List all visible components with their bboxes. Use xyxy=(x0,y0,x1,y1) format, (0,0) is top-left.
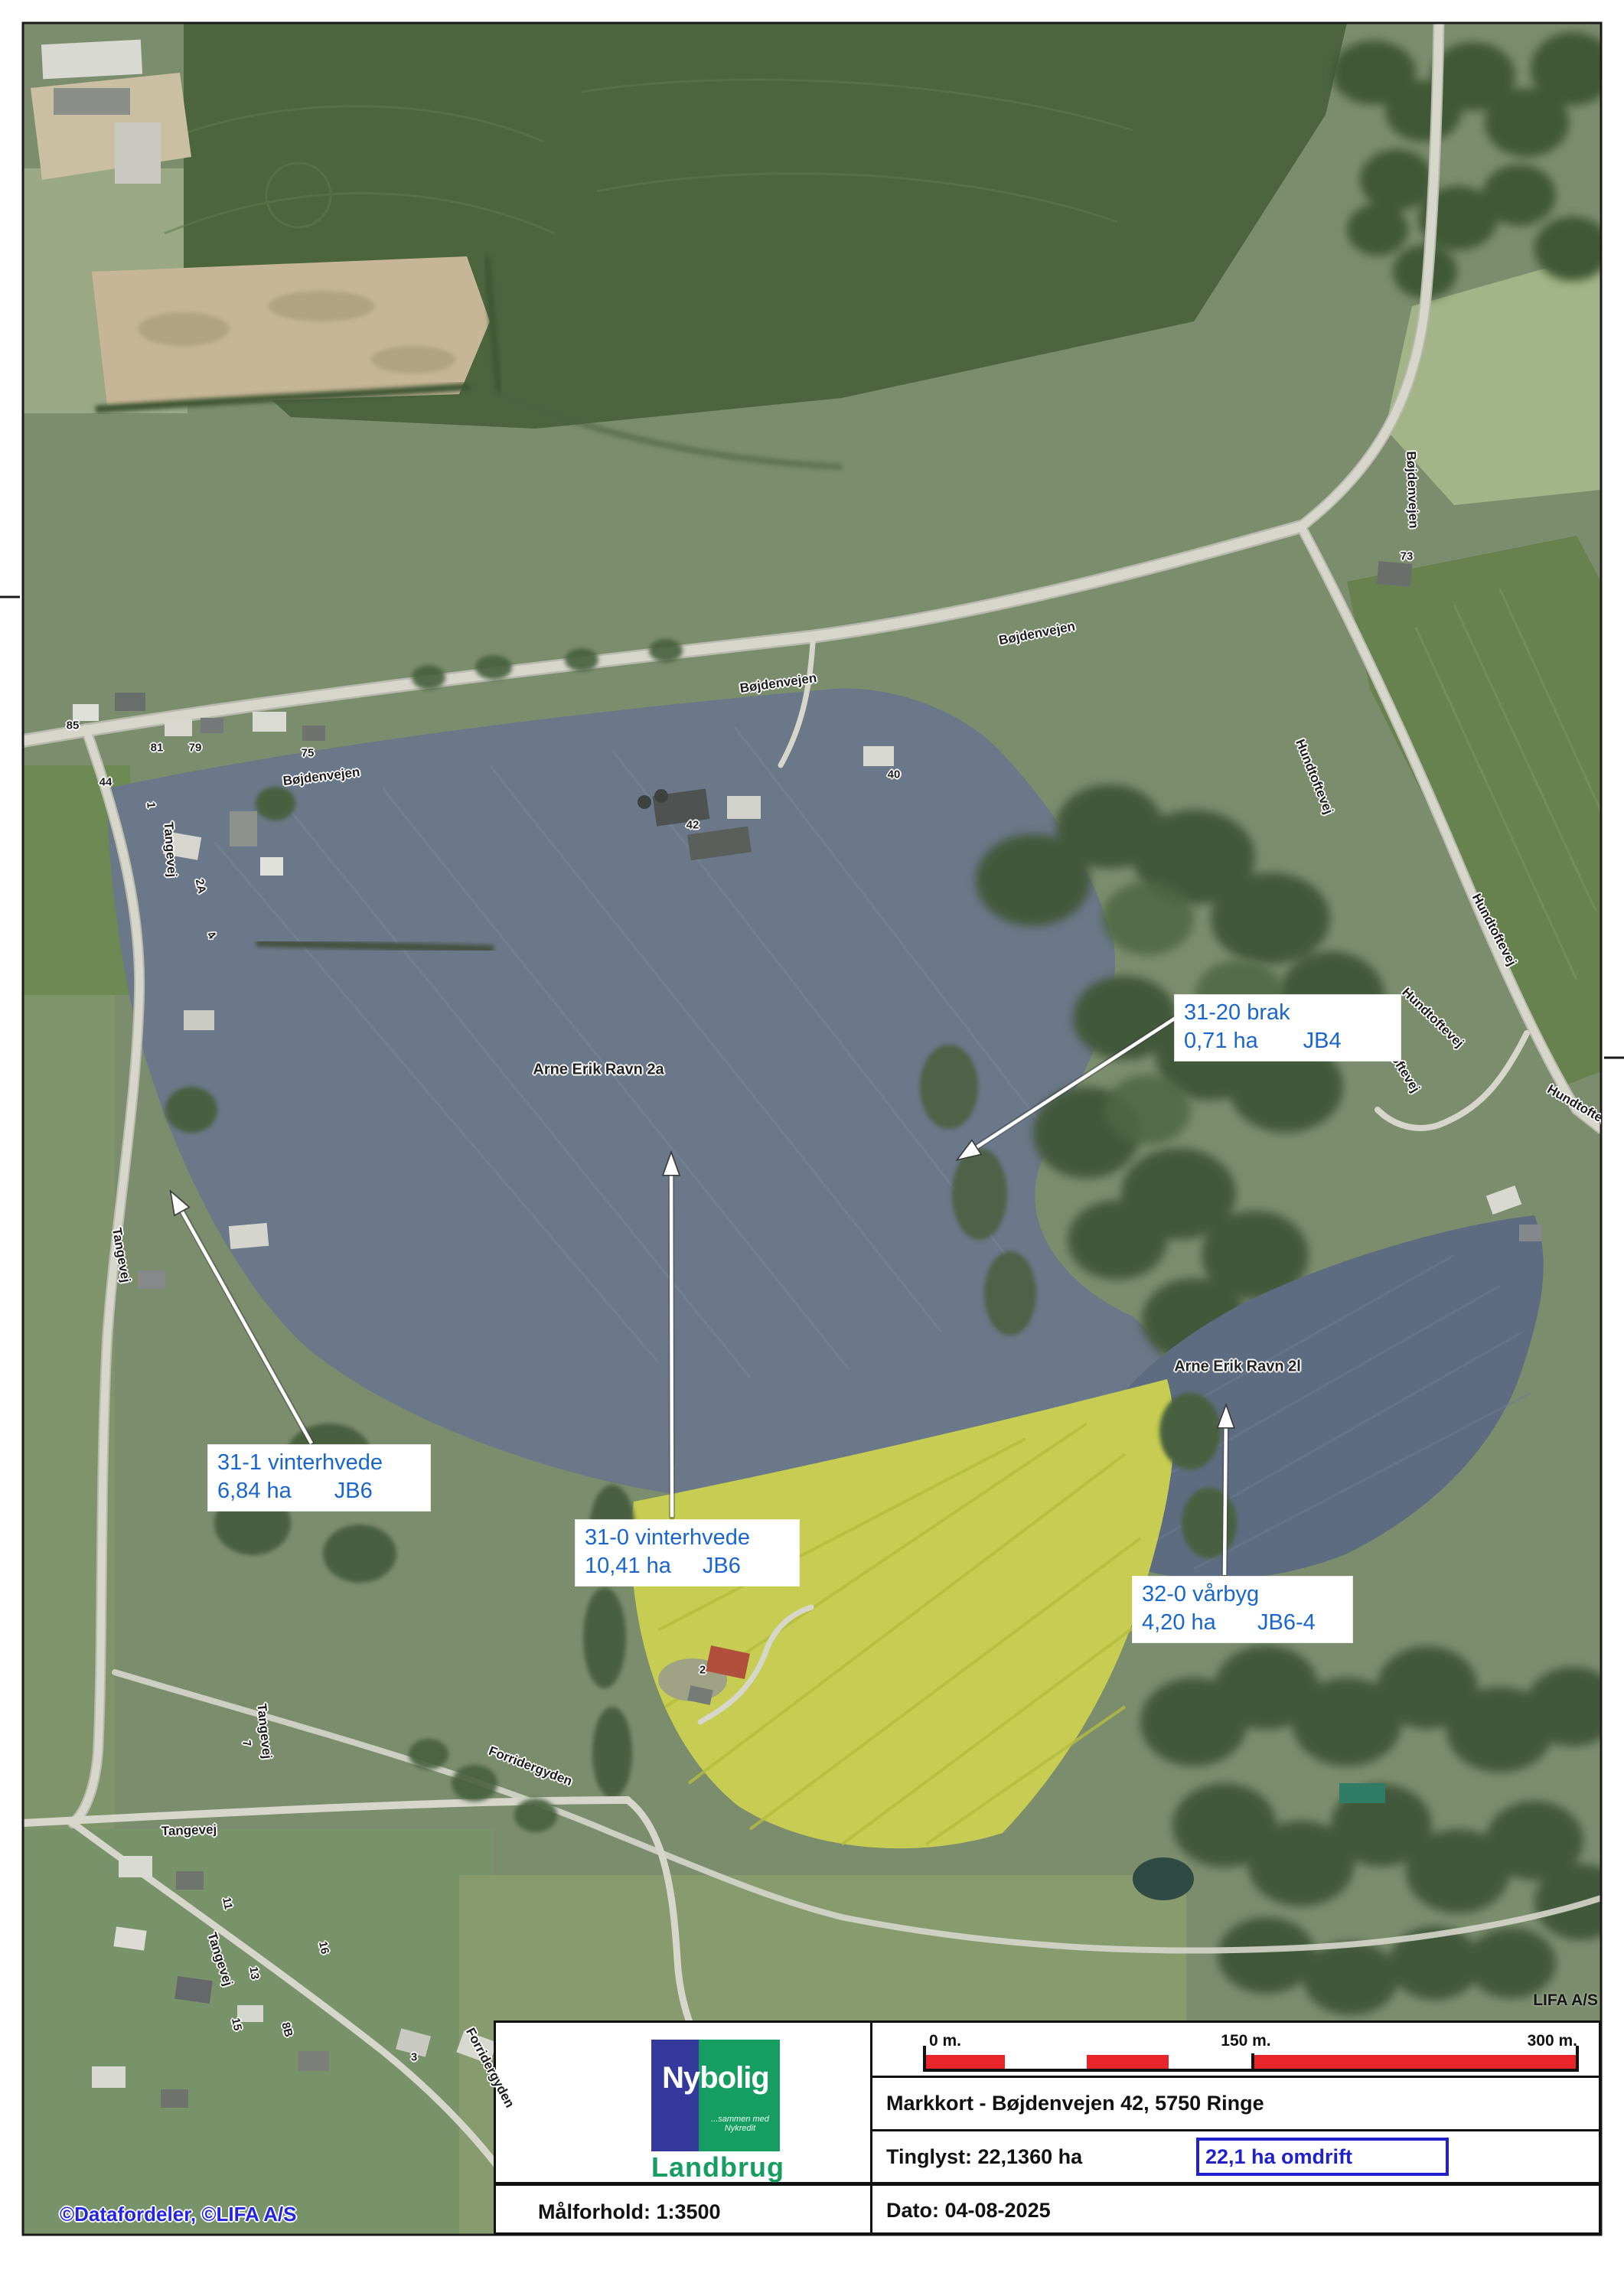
legend-line xyxy=(872,2076,1599,2078)
house-number: 40 xyxy=(888,768,901,781)
annotation-soil-type: JB6 xyxy=(334,1477,373,1505)
field-annotation-box: 31-20 brak0,71 haJB4 xyxy=(1175,995,1401,1061)
annotation-soil-type: JB6 xyxy=(703,1552,741,1580)
lifa-watermark: LIFA A/S xyxy=(1498,1991,1598,2010)
annotation-area-line: 0,71 haJB4 xyxy=(1184,1027,1393,1055)
road-label: Bøjdenvejen xyxy=(282,765,361,789)
house-number: 7 xyxy=(240,1739,253,1747)
road-label: Tangevej xyxy=(160,821,179,878)
house-number: 2A xyxy=(193,878,209,895)
road-label: Tangevej xyxy=(204,1930,235,1988)
road-label: Hundtoftevej xyxy=(1544,1081,1601,1134)
house-number: 73 xyxy=(1401,550,1414,563)
legend-box: Nybolig ...sammen med Nykredit Landbrug … xyxy=(494,2020,1601,2235)
omdrift-highlight-box: 22,1 ha omdrift xyxy=(1196,2138,1449,2176)
house-number: 44 xyxy=(99,776,113,789)
road-label: Tangevej xyxy=(253,1703,274,1760)
annotation-area-line: 4,20 haJB6-4 xyxy=(1142,1609,1345,1637)
scale-tick xyxy=(923,2046,926,2072)
annotation-soil-type: JB6-4 xyxy=(1257,1609,1316,1637)
annotation-crop-line: 31-0 vinterhvede xyxy=(585,1524,791,1552)
logo-green-square xyxy=(699,2040,780,2151)
road-label: Bøjdenvejen xyxy=(1403,451,1421,529)
house-number: 15 xyxy=(229,2017,244,2032)
logo-tagline: ...sammen med Nykredit xyxy=(700,2115,780,2133)
road-label: Tangevej xyxy=(161,1822,217,1840)
scale-segment xyxy=(1087,2055,1169,2069)
annotation-area: 0,71 ha xyxy=(1184,1029,1258,1053)
house-number: 85 xyxy=(67,719,80,732)
legend-line xyxy=(872,2129,1599,2131)
annotation-crop-line: 32-0 vårbyg xyxy=(1142,1580,1345,1609)
page: Nybolig ...sammen med Nykredit Landbrug … xyxy=(0,0,1624,2296)
road-label: Bøjdenvejen xyxy=(739,670,818,696)
road-label: Hundtoftevej xyxy=(1469,891,1519,968)
scale-segment xyxy=(923,2055,1005,2069)
house-number: 42 xyxy=(686,819,699,832)
copyright-text: ©Datafordeler, ©LIFA A/S xyxy=(60,2203,296,2226)
annotation-crop-line: 31-1 vinterhvede xyxy=(217,1449,422,1477)
logo-blue-square xyxy=(651,2040,699,2151)
house-number: 81 xyxy=(151,742,164,755)
road-label: Hundtoftevej xyxy=(1292,737,1335,817)
house-number: 3 xyxy=(411,2051,417,2064)
logo-brand-text: Nybolig xyxy=(651,2061,780,2095)
map-label-layer: Nybolig ...sammen med Nykredit Landbrug … xyxy=(23,23,1601,2235)
scale-segment xyxy=(1251,2055,1580,2069)
field-owner-label: Arne Erik Ravn 2l xyxy=(1174,1358,1301,1376)
road-label: Bøjdenvejen xyxy=(997,619,1076,649)
field-annotation-box: 31-1 vinterhvede6,84 haJB6 xyxy=(208,1445,430,1511)
house-number: 13 xyxy=(246,1966,261,1981)
house-number: 16 xyxy=(316,1940,331,1955)
scale-bar: 0 m. 150 m. 300 m. xyxy=(923,2032,1579,2072)
annotation-area-line: 10,41 haJB6 xyxy=(585,1552,791,1580)
house-number: 79 xyxy=(189,742,202,755)
house-number: 2 xyxy=(699,1664,706,1677)
house-number: 75 xyxy=(302,747,315,760)
house-number: 1 xyxy=(144,801,158,809)
annotation-area-line: 6,84 haJB6 xyxy=(217,1477,422,1505)
scale-label-0: 0 m. xyxy=(929,2032,961,2050)
field-annotation-box: 32-0 vårbyg4,20 haJB6-4 xyxy=(1133,1577,1352,1642)
road-label: Hundtoftevej xyxy=(1399,985,1467,1052)
scale-label-150: 150 m. xyxy=(1221,2032,1270,2050)
field-annotation-box: 31-0 vinterhvede10,41 haJB6 xyxy=(576,1520,799,1586)
house-number: 11 xyxy=(220,1896,235,1910)
scale-label-300: 300 m. xyxy=(1528,2032,1577,2050)
scale-ratio-text: Målforhold: 1:3500 xyxy=(538,2200,721,2224)
annotation-crop-line: 31-20 brak xyxy=(1184,999,1393,1027)
legend-divider xyxy=(870,2023,872,2232)
scale-tick xyxy=(1251,2053,1254,2072)
tinglyst-area: Tinglyst: 22,1360 ha xyxy=(886,2145,1082,2169)
annotation-soil-type: JB4 xyxy=(1303,1027,1342,1055)
road-label: Forridergyden xyxy=(487,1743,575,1789)
map-title: Markkort - Bøjdenvejen 42, 5750 Ringe xyxy=(886,2092,1264,2115)
date-text: Dato: 04-08-2025 xyxy=(886,2199,1051,2223)
field-owner-label: Arne Erik Ravn 2a xyxy=(533,1062,664,1079)
nybolig-landbrug-logo: Nybolig ...sammen med Nykredit Landbrug xyxy=(651,2040,780,2179)
omdrift-value: 22,1 ha omdrift xyxy=(1205,2145,1352,2169)
annotation-area: 10,41 ha xyxy=(585,1554,671,1578)
logo-division-text: Landbrug xyxy=(651,2151,780,2183)
house-number: 8B xyxy=(279,2021,295,2039)
house-number: 4 xyxy=(204,928,218,941)
annotation-area: 6,84 ha xyxy=(217,1479,292,1503)
annotation-area: 4,20 ha xyxy=(1142,1610,1216,1635)
scale-tick xyxy=(1576,2046,1579,2072)
road-label: Tangevej xyxy=(109,1227,133,1284)
